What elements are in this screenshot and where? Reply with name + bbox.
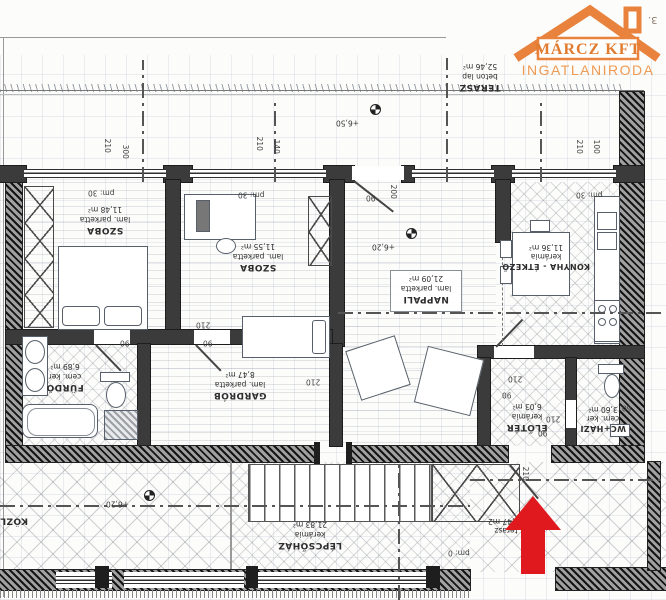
floor-plan-sheet: SZOBA lam. parketta 11,48 m² SZOBA lam. … xyxy=(0,0,666,600)
kitchen-sink-1 xyxy=(597,212,617,230)
room-name: KONYHA - ÉTKEZŐ xyxy=(500,261,592,271)
room-floor: lam. parketta xyxy=(200,379,280,388)
stairs xyxy=(248,464,432,522)
wardrobe-szoba1 xyxy=(24,186,54,328)
bathtub-inner xyxy=(27,408,95,436)
axis-v1 xyxy=(142,60,144,182)
pillow-szoba1-left xyxy=(62,306,100,326)
room-name: SZOBA xyxy=(223,261,293,272)
wall-terrace-bottom xyxy=(556,568,666,590)
entrance-arrow-icon xyxy=(505,496,561,574)
axis-h1 xyxy=(0,505,470,507)
room-name: GARDRÓB xyxy=(200,389,280,400)
dimension-label: pm: 30 xyxy=(238,191,265,199)
dimension-label: 90 xyxy=(366,194,376,202)
dimension-label: 100 xyxy=(592,140,600,154)
room-floor: lam. parketta xyxy=(391,283,461,292)
wall-bottom-seg3 xyxy=(552,446,644,462)
bottom-window-2 xyxy=(124,576,244,584)
post-3 xyxy=(426,566,440,588)
room-name: NAPPALI xyxy=(391,293,461,304)
room-floor: kerámia xyxy=(268,529,352,538)
bottom-window-3 xyxy=(254,576,426,584)
room-name: LÉPCSŐHÁZ xyxy=(268,539,352,550)
dimension-label: 210 xyxy=(103,139,111,153)
burner-3 xyxy=(598,318,606,326)
sink-1 xyxy=(25,340,45,364)
logo-chimney xyxy=(626,9,639,31)
room-floor: beton lap xyxy=(448,71,512,80)
wall-szoba2-nappali xyxy=(330,180,344,346)
room-name: SZOBA xyxy=(70,224,140,235)
dimension-label: 210 xyxy=(521,467,529,481)
room-label-kozl: KÖZL xyxy=(0,514,34,525)
window-konyha xyxy=(512,169,616,178)
dimension-label: 210 xyxy=(255,137,263,151)
dimension-label: 200 xyxy=(389,185,397,199)
dimension-label: 210 xyxy=(196,321,210,329)
axis-v4 xyxy=(540,100,542,182)
washing-machine xyxy=(104,410,138,440)
wall-gardrob-right xyxy=(330,344,342,446)
room-floor: lam. parketta xyxy=(70,214,140,223)
room-name: TERASZ xyxy=(448,81,512,92)
company-logo: MÁRCZ KFT INGATLANIRODA xyxy=(510,2,664,82)
bottom-insulation-hatch xyxy=(0,590,470,598)
window-nappali xyxy=(412,169,494,178)
wall-outer-left xyxy=(6,166,22,462)
wall-furdo-gardrob xyxy=(138,344,150,446)
room-label-nappali: NAPPALI lam. parketta 21,09 m² xyxy=(391,274,461,304)
room-area: 21,83 m² xyxy=(268,520,352,529)
room-name: FÜRDŐ xyxy=(36,381,94,392)
level-marker-terasz xyxy=(370,104,381,115)
floor-kozl-terrace xyxy=(0,462,230,574)
dimension-label: 210 xyxy=(306,378,320,386)
dimension-label: pm: 0 xyxy=(448,549,470,557)
room-label-terasz: TERASZ beton lap 52,46 m² xyxy=(448,62,512,92)
post-1 xyxy=(95,566,109,588)
room-floor: cem. ker xyxy=(36,371,94,380)
room-label-furdo: FÜRDŐ cem. ker 6,89 m² xyxy=(36,362,94,392)
room-name: KÖZL xyxy=(0,514,34,525)
terrace-edge-line xyxy=(0,90,644,95)
floor-nappali xyxy=(344,182,496,346)
toilet-bowl-furdo xyxy=(106,382,126,408)
level-marker-nappali xyxy=(406,228,417,239)
level-text-nappali: +6,20 xyxy=(372,243,395,251)
room-label-lepcsohaz: LÉPCSŐHÁZ kerámia 21,83 m² xyxy=(268,520,352,550)
room-label-szoba1: SZOBA lam. parketta 11,48 m² xyxy=(70,205,140,235)
dimension-label: 90 xyxy=(502,391,512,399)
dimension-label: 90 xyxy=(538,429,548,437)
room-area: 11,36 m² xyxy=(500,242,592,251)
door-gap-eloter xyxy=(494,346,534,358)
logo-subtitle: INGATLANIRODA xyxy=(522,62,655,78)
window-szoba2 xyxy=(190,169,326,178)
axis-h3 xyxy=(338,312,666,314)
pillow-szoba2 xyxy=(312,320,326,354)
dimension-label: pm: 30 xyxy=(576,191,603,199)
room-floor: kerámia xyxy=(500,251,592,260)
wall-bottom-seg1 xyxy=(6,446,318,462)
room-label-konyha: KONYHA - ÉTKEZŐ kerámia 11,36 m² xyxy=(500,242,592,271)
kitchen-sink-2 xyxy=(597,232,617,250)
sheet-boundary-top xyxy=(0,37,446,38)
room-floor: lam. parketta xyxy=(223,251,293,260)
toilet-bowl-wc xyxy=(604,374,620,398)
room-label-szoba2: SZOBA lam. parketta 11,55 m² xyxy=(223,242,293,272)
burner-4 xyxy=(609,318,617,326)
level-text-kozl: +6,20 xyxy=(106,500,129,508)
dimension-label: 90 xyxy=(120,339,130,347)
room-area: 11,48 m² xyxy=(70,205,140,214)
desk-szoba2 xyxy=(184,194,256,240)
dimension-label: 90 xyxy=(203,339,213,347)
wall-top-seg1 xyxy=(0,166,26,182)
post-2 xyxy=(246,566,258,588)
dimension-label: 210 xyxy=(546,415,560,423)
chair-3 xyxy=(530,220,550,232)
dimension-label: 60 xyxy=(622,404,632,412)
window-szoba1 xyxy=(24,169,166,178)
level-marker-kozl xyxy=(144,490,155,501)
wall-bottom-seg2 xyxy=(348,446,508,462)
room-area: 8,47 m² xyxy=(200,370,280,379)
dimension-label: 210 xyxy=(508,375,522,383)
monitor-szoba2 xyxy=(196,200,210,232)
wall-szoba1-szoba2 xyxy=(166,180,180,332)
toilet-tank-furdo xyxy=(100,372,130,382)
level-text-terasz: +6,50 xyxy=(336,119,359,127)
wall-nappali-konyha xyxy=(496,180,510,242)
room-area: 21,09 m² xyxy=(391,274,461,283)
wall-top-seg6 xyxy=(614,166,644,182)
wardrobe-szoba2 xyxy=(308,196,332,266)
room-label-gardrob: GARDRÓB lam. parketta 8,47 m² xyxy=(200,370,280,400)
door-gap-terasz xyxy=(352,166,404,180)
dimension-label: pm: 30 xyxy=(88,189,115,197)
toilet-tank-wc xyxy=(598,364,624,374)
room-area: 52,46 m² xyxy=(448,62,512,71)
room-name: WC+HÁZI xyxy=(574,423,632,433)
room-area: 6,03 m² xyxy=(495,402,559,411)
kozl-boundary xyxy=(230,462,232,572)
pillow-szoba1-right xyxy=(104,306,142,326)
door-jamb-right xyxy=(346,442,352,466)
axis-h2 xyxy=(470,479,666,481)
axis-v5 xyxy=(398,462,400,600)
dimension-label: 300 xyxy=(121,145,129,159)
door-jamb-left xyxy=(314,442,320,466)
dimension-label: 140 xyxy=(272,140,280,154)
room-floor: cem. ker xyxy=(574,413,632,422)
room-area: 6,89 m² xyxy=(36,362,94,371)
logo-house-icon: MÁRCZ KFT INGATLANIRODA xyxy=(510,2,664,82)
room-area: 11,55 m² xyxy=(223,242,293,251)
dimension-label: 210 xyxy=(575,140,583,154)
entrance-arrow xyxy=(505,496,561,574)
logo-title: MÁRCZ KFT xyxy=(535,39,641,58)
